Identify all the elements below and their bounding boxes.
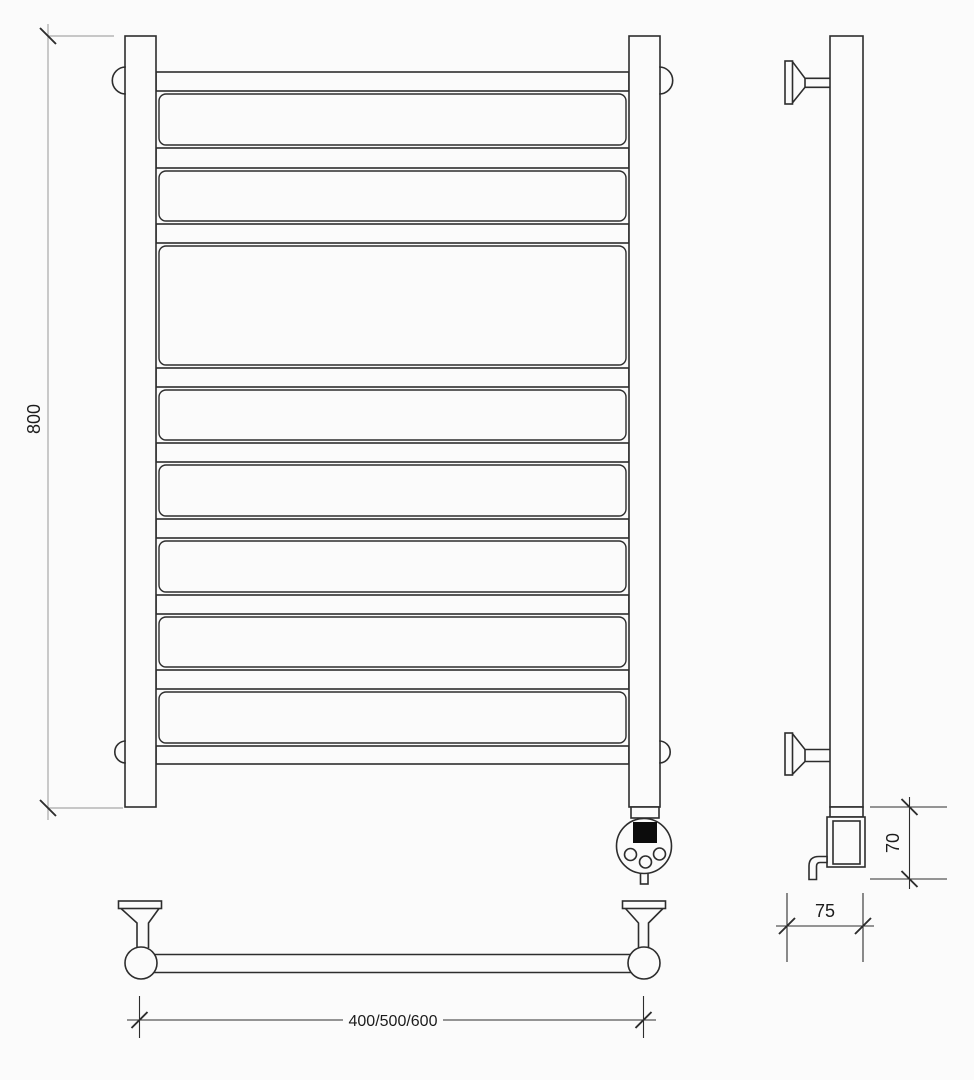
mount-boss-bottom-left — [115, 741, 126, 763]
bracket-cone-bottom — [793, 734, 831, 775]
dimension-label-75: 75 — [815, 901, 835, 921]
rung — [156, 595, 629, 614]
rung — [156, 368, 629, 387]
element-button — [640, 856, 652, 868]
side-post — [830, 36, 863, 807]
rung-gap — [159, 541, 626, 592]
rung-gap — [159, 692, 626, 743]
dimension-element-70: 70 — [870, 797, 947, 889]
wall-plate-left — [119, 901, 162, 909]
element-button — [654, 848, 666, 860]
dimension-width-options: 400/500/600 — [127, 996, 656, 1038]
bracket-leg-left — [121, 909, 159, 949]
mount-boss-bottom-right — [659, 741, 670, 763]
mount-boss-top-left — [112, 67, 126, 94]
element-button — [625, 849, 637, 861]
power-cable-hook — [809, 857, 827, 880]
rung-gap — [159, 171, 626, 221]
wall-plate-right — [623, 901, 666, 909]
dimension-depth-75: 75 — [776, 893, 874, 962]
rung — [156, 224, 629, 243]
wall-plate-top — [785, 61, 793, 104]
element-collar — [631, 807, 659, 818]
mount-boss-top-right — [659, 67, 673, 94]
dimension-label-800: 800 — [24, 404, 44, 434]
rung-gap — [159, 617, 626, 667]
wall-bracket-bottom — [785, 733, 830, 775]
post-section-left — [125, 947, 157, 979]
heating-element-front — [617, 807, 672, 884]
dimension-height-800: 800 — [24, 24, 123, 820]
technical-drawing: 800 70 75 400/500/600 — [0, 0, 974, 1080]
rung-gap — [159, 246, 626, 365]
rung-gap — [159, 390, 626, 440]
element-display — [633, 822, 657, 843]
bracket-cone-top — [793, 62, 831, 103]
extension-line — [870, 807, 947, 879]
rung-gap — [159, 465, 626, 516]
right-post — [629, 36, 660, 807]
heating-element-side — [809, 807, 865, 880]
dimension-label-70: 70 — [883, 833, 903, 853]
rung — [156, 443, 629, 462]
wall-bracket-top — [785, 61, 830, 104]
dimension-label-width-options: 400/500/600 — [349, 1013, 438, 1030]
wall-plate-bottom — [785, 733, 793, 775]
bracket-leg-right — [626, 909, 664, 949]
rung — [156, 746, 629, 764]
left-post — [125, 36, 156, 807]
rung — [156, 519, 629, 538]
extension-line — [48, 36, 123, 808]
rung — [156, 148, 629, 168]
element-collar-side — [830, 807, 863, 817]
crossbar — [141, 955, 644, 973]
top-view — [119, 901, 666, 979]
side-view — [785, 36, 865, 880]
rung — [156, 670, 629, 689]
front-view — [112, 36, 672, 884]
post-section-right — [628, 947, 660, 979]
rung — [156, 72, 629, 91]
rung-gap — [159, 94, 626, 145]
